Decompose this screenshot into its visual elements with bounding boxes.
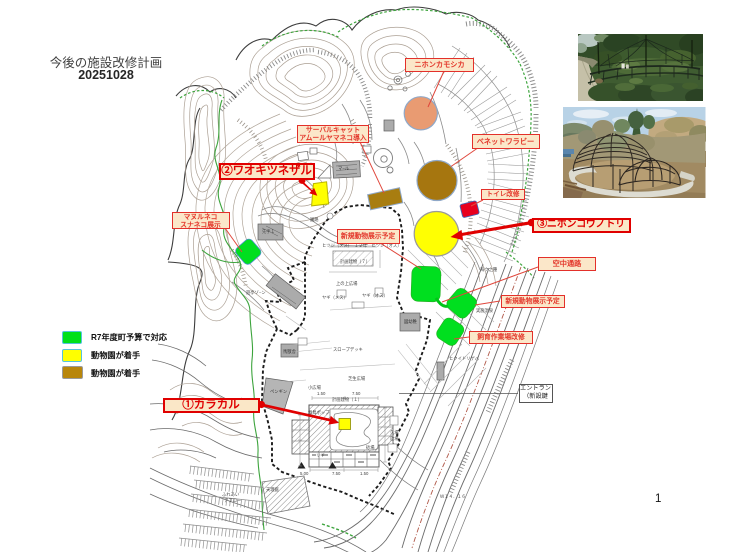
svg-text:1.50: 1.50 [360,471,369,476]
svg-text:遊亭ゾ−ン: 遊亭ゾ−ン [246,289,266,296]
svg-text:天理庭: 天理庭 [266,486,280,493]
svg-text:砂場: 砂場 [366,444,375,451]
svg-text:7.50: 7.50 [332,471,341,476]
svg-text:久場: 久場 [390,429,399,436]
svg-text:7.50: 7.50 [352,391,361,396]
svg-text:ヒクイドリゲバ: ヒクイドリゲバ [449,355,480,362]
svg-text:計画建物（７）: 計画建物（７） [340,258,370,265]
svg-text:馬獣舎: 馬獣舎 [283,348,297,355]
svg-text:先手１: 先手１ [262,228,275,235]
svg-text:計画建物（１）: 計画建物（１） [332,396,362,403]
svg-text:スロープデッキ: スロープデッキ [333,346,363,353]
svg-text:上の上広場: 上の上広場 [336,280,358,287]
svg-text:リギ: リギ [316,453,325,458]
svg-text:ペンギン: ペンギン [270,389,287,394]
svg-text:Ｗ１４．１６: Ｗ１４．１６ [440,494,466,499]
svg-text:園路: 園路 [310,216,319,223]
svg-text:無鳥ポップ: 無鳥ポップ [308,409,330,416]
svg-text:図幼稚: 図幼稚 [404,318,418,325]
svg-text:1.50: 1.50 [317,391,326,396]
svg-text:実施温泉: 実施温泉 [476,307,494,314]
svg-text:5.00: 5.00 [300,471,309,476]
svg-text:海ク之種: 海ク之種 [480,266,498,273]
svg-text:小広場: 小広場 [308,384,322,391]
svg-text:ヤギ（メス）: ヤギ（メス） [322,295,348,300]
svg-text:放場: 放場 [390,435,399,442]
svg-text:ヤギ（オス）: ヤギ（オス） [362,293,388,298]
svg-text:芝生広場: 芝生広場 [348,375,366,382]
